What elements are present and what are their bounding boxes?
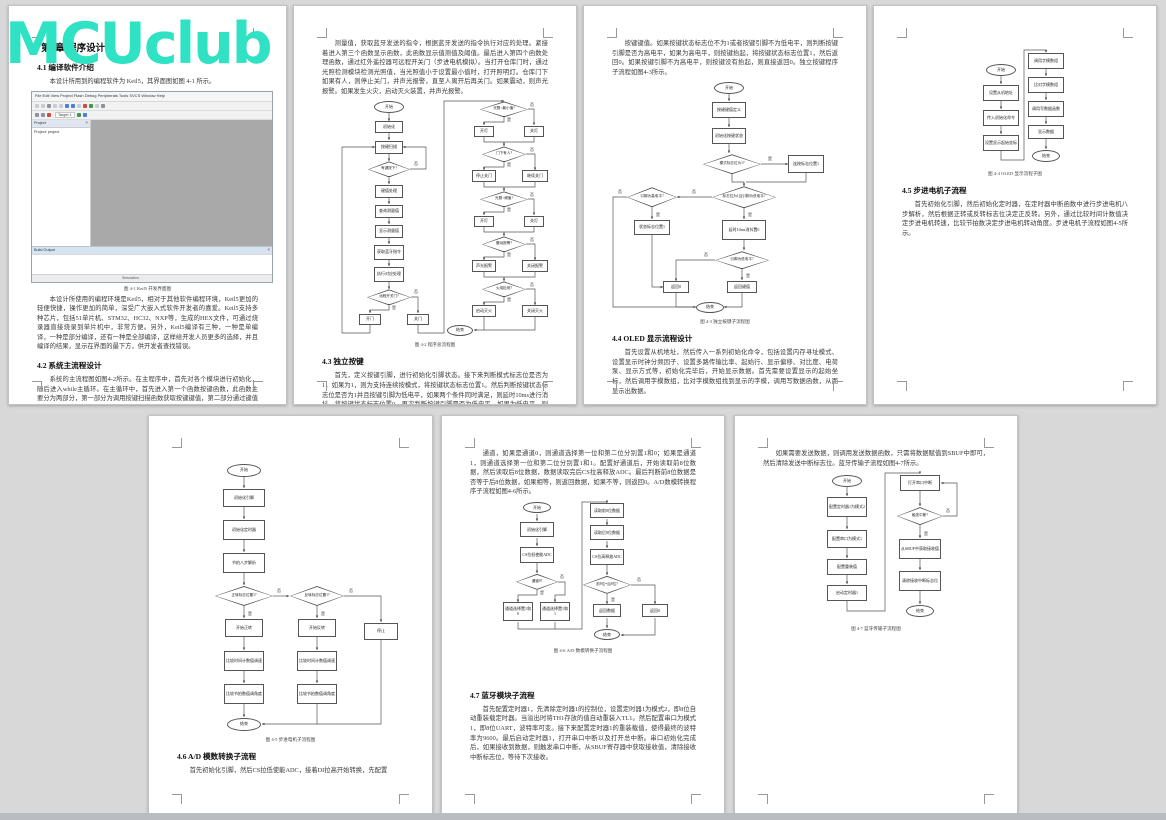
page-2[interactable]: 测量值，获取蓝牙发送的指令，根据蓝牙发送的指令执行对应的处理。紧接着进入第三个函…: [293, 5, 577, 405]
margin-corner-mark: [253, 381, 263, 391]
flowchart-node-box: 继续关门: [522, 170, 548, 182]
flowchart-node-box: 初始化引脚: [223, 489, 265, 507]
svg-text:是: 是: [656, 211, 660, 217]
section-4-6-title: 4.6 A/D 模数转换子流程: [177, 751, 404, 762]
flowchart-node-diamond: 触发中断?: [897, 507, 943, 525]
keil-status-bar: Simulation: [32, 274, 272, 282]
svg-text:是: 是: [768, 155, 772, 161]
flowchart-node-box: 打开串口中断: [900, 475, 940, 491]
margin-corner-mark: [253, 28, 263, 38]
project-panel-title: Project: [34, 121, 46, 125]
flowchart-node-box: 设置显示起始坐标: [983, 135, 1019, 151]
margin-corner-mark: [833, 28, 843, 38]
paragraph: 按键键值。如果按键状态标志位不为1或者按键引脚不为低电平，则判断按键引脚是否为高…: [612, 39, 838, 77]
build-output-title: Build Output: [34, 248, 55, 252]
flowchart-node-oval: 开始: [986, 64, 1016, 76]
margin-corner-mark: [399, 794, 409, 804]
flowchart-node-box: 开灯: [474, 216, 494, 227]
figure-caption: 图 4-1 Keil5 开发界面图: [37, 286, 258, 292]
flowchart-node-diamond: 前8位=后8位?: [583, 576, 631, 594]
flowchart-node-box: 返回0: [642, 604, 668, 617]
flowchart-node-diamond: 震动报警?: [482, 236, 526, 252]
close-icon: ×: [267, 248, 270, 253]
flowchart-node-box: 开始反转: [298, 619, 336, 637]
keil-editor-area: [91, 120, 272, 246]
flowchart-node-box: 显示数据: [1028, 125, 1064, 139]
flowchart-node-diamond: 引脚为高电平?: [627, 187, 677, 207]
spacer: [470, 656, 696, 682]
section-4-7-title: 4.7 蓝牙模块子流程: [470, 690, 696, 701]
svg-text:是: 是: [611, 596, 615, 602]
keil-menu-bar: File Edit View Project Flash Debug Perip…: [32, 92, 272, 102]
flowchart-node-box: 初始化按键状态: [712, 128, 746, 144]
flowchart-node-box: 初始化引脚: [520, 522, 554, 537]
figure-caption: 图 4-6 A/D 数模转换子流程图: [470, 648, 696, 654]
flowchart-node-box: 显示测量值: [375, 225, 403, 238]
svg-text:否: 否: [530, 282, 534, 287]
page-7[interactable]: 如果需要发送数据，则调用发送数据函数，只需将数据赋值到SBUF中即可，然后清除发…: [734, 415, 1018, 818]
svg-text:否: 否: [414, 289, 418, 294]
run-icon: [89, 104, 93, 108]
document-canvas[interactable]: MCUclub 第4章 程序设计 4.1 编译软件介绍 本设计所用到的编程软件为…: [0, 0, 1166, 820]
flowchart-node-diamond: 模式标志位为1?: [703, 154, 761, 174]
svg-text:否: 否: [530, 147, 534, 152]
flowchart-node-box: 配置串口为模式1: [827, 530, 867, 548]
section-4-2-title: 4.2 系统主流程设计: [37, 360, 258, 371]
flowchart-node-box: 开始正转: [225, 619, 263, 637]
build-output-area: [32, 254, 272, 274]
page-1[interactable]: MCUclub 第4章 程序设计 4.1 编译软件介绍 本设计所用到的编程软件为…: [8, 5, 287, 405]
redo-icon: [71, 104, 75, 108]
flowchart-node-box: 传入初始化命令: [983, 110, 1019, 126]
margin-corner-mark: [758, 438, 768, 448]
flowchart-node-box: 按键扫描: [375, 141, 403, 154]
breakpoint-icon: [83, 104, 87, 108]
margin-corner-mark: [399, 438, 409, 448]
flowchart-node-oval: 结束: [696, 302, 724, 313]
figure-caption: 图 4-4 OLED 显示流程子图: [902, 171, 1128, 177]
flowchart-node-box: 节拍八步解析: [223, 553, 265, 573]
margin-corner-mark: [607, 28, 617, 38]
margin-corner-mark: [607, 381, 617, 391]
svg-text:否: 否: [530, 237, 534, 242]
paragraph: 首先设置从机地址，然后传入一系列初始化命令，包括设置内存寻址模式、设置显示时钟分…: [612, 348, 838, 396]
margin-corner-mark: [317, 28, 327, 38]
figure-caption: 图 4-5 步进电机子流程图: [177, 737, 404, 743]
flowchart-node-box: 读取后8位数据: [590, 525, 624, 540]
keil-workspace: Project × Project: project: [32, 120, 272, 246]
svg-text:否: 否: [560, 574, 564, 579]
flowchart-node-box: 初始化定时器: [223, 520, 265, 540]
flowchart-node-oval: 结束: [1032, 150, 1060, 162]
paragraph: 本设计所用到的编程软件为 Keil5，其界面图如图 4-1 所示。: [37, 77, 258, 87]
margin-corner-mark: [984, 438, 994, 448]
build-output-header: Build Output ×: [32, 246, 272, 254]
flowchart-node-box: 通道选择置1和0: [503, 602, 533, 621]
margin-corner-mark: [32, 28, 42, 38]
svg-text:否: 否: [946, 508, 950, 513]
flowchart-node-box: 清除接收中断标志位: [899, 571, 941, 591]
flowchart-node-box: CS拉高释放ADC: [590, 549, 624, 565]
flowchart-node-box: 比对字模数组: [1028, 77, 1064, 93]
paragraph: 如果需要发送数据，则调用发送数据函数，只需将数据赋值到SBUF中即可，然后清除发…: [763, 449, 989, 468]
project-tree-item: Project: project: [32, 128, 90, 136]
svg-text:否: 否: [530, 102, 534, 107]
margin-corner-mark: [897, 28, 907, 38]
new-file-icon: [35, 104, 39, 108]
undo-icon: [65, 104, 69, 108]
flowchart-node-diamond: 反转标志位置1?: [290, 586, 344, 606]
keil-ide-screenshot: File Edit View Project Flash Debug Perip…: [31, 91, 273, 283]
paragraph: 测量值，获取蓝牙发送的指令，根据蓝牙发送的指令执行对应的处理。紧接着进入第三个函…: [322, 39, 548, 96]
flowchart-node-box: 按键键值定义: [712, 102, 746, 118]
flowchart-node-box: 延时10ms消抖置0: [722, 220, 766, 240]
window-bottom-strip: [0, 813, 1166, 820]
bluetooth-flowchart: 是否开始配置定时器1为模式2配置串口为模式1配置重装值启动定时器1打开串口中断触…: [735, 471, 1018, 623]
svg-text:否: 否: [618, 189, 622, 194]
margin-corner-mark: [758, 794, 768, 804]
flowchart-node-box: 关灯: [524, 126, 544, 137]
adc-flowchart: 是否是否开始初始化引脚CS拉低使能ADC通道0?通道选择置1和0通道选择置1和1…: [442, 500, 725, 645]
open-file-icon: [41, 104, 45, 108]
load-icon: [47, 113, 51, 117]
flowchart-node-diamond: 门下有人?: [482, 146, 526, 162]
status-text: Simulation: [122, 276, 139, 280]
flowchart-node-box: 启动定时器1: [827, 585, 867, 601]
paragraph: 本设计所使用的编程环境是Keil5，相对于其他软件编程环境，Keil5更加的轻便…: [37, 295, 258, 352]
flowchart-node-box: 比较时间计数值调速: [297, 651, 337, 671]
svg-text:否: 否: [704, 252, 708, 257]
margin-corner-mark: [1123, 28, 1133, 38]
flowchart-node-diamond: 光照<最小值?: [480, 101, 528, 117]
svg-text:是: 是: [924, 530, 928, 536]
flowchart-node-box: 关门: [407, 314, 429, 325]
flowchart-node-box: CS拉低使能ADC: [520, 547, 554, 563]
svg-text:是: 是: [248, 610, 252, 616]
build-icon: [35, 113, 39, 117]
flowchart-node-box: 关闭灭火: [522, 305, 548, 317]
keil-toolbar-top: [32, 102, 272, 111]
flowchart-node-box: 获取蓝牙指令: [374, 245, 404, 260]
options-icon: [83, 113, 87, 117]
flowchart-node-diamond: 有键按下?: [368, 161, 410, 177]
page-3[interactable]: 按键键值。如果按键状态标志位不为1或者按键引脚不为低电平，则判断按键引脚是否为高…: [583, 5, 867, 405]
svg-text:是: 是: [321, 610, 325, 616]
flowchart-node-box: 比较节拍数值调角度: [224, 684, 264, 704]
flowchart-node-diamond: 标志位为1且引脚为低电平?: [712, 186, 776, 208]
flowchart-node-box: 调用写数据函数: [1028, 101, 1064, 117]
copy-icon: [59, 104, 63, 108]
flowchart-node-box: 读取前8位数据: [590, 503, 624, 518]
debug-icon: [77, 113, 81, 117]
flowchart-node-box: 键值处理: [375, 185, 403, 198]
flowchart-node-box: 开灯: [474, 126, 494, 137]
flowchart-node-box: 停止关门: [472, 170, 496, 182]
figure-caption: 图 4-3 独立按键子流程图: [612, 319, 838, 325]
paragraph: 通道，如果是通道0，则通道选择第一位和第二位分别置1和0；如果是通道1，则通道选…: [470, 449, 696, 497]
flowchart-node-box: 执行对应处理: [374, 267, 404, 282]
margin-corner-mark: [465, 794, 475, 804]
margin-corner-mark: [1123, 381, 1133, 391]
flowchart-node-box: 声光报警: [472, 260, 496, 272]
page-4[interactable]: 开始设置从机地址传入初始化命令设置显示起始坐标调用字模数组比对字模数组调用写数据…: [873, 5, 1157, 405]
key-flowchart: 是否是是否是否开始按键键值定义初始化按键状态模式标志位为1?连按标志位置1标志位…: [584, 80, 867, 316]
main-flowchart: 否是否是否是否是否是否是否开始初始化按键扫描有键按下?键值处理查询测量值显示测量…: [294, 99, 577, 339]
svg-text:否: 否: [530, 192, 534, 197]
flowchart-node-diamond: 火焰检测?: [482, 281, 526, 297]
flowchart-node-diamond: 通道0?: [516, 574, 558, 590]
cut-icon: [53, 104, 57, 108]
flowchart-node-box: 比较节拍数值调角度: [297, 684, 337, 704]
flowchart-node-box: 开门: [359, 314, 381, 325]
svg-text:是: 是: [746, 272, 750, 278]
chapter-title: 第4章 程序设计: [41, 40, 258, 54]
flowchart-node-box: 启动灭火: [472, 305, 496, 317]
save-icon: [47, 104, 51, 108]
section-4-4-title: 4.4 OLED 显示流程设计: [612, 333, 838, 344]
bookmark-icon: [77, 104, 81, 108]
flowchart-node-box: 返回0: [663, 281, 689, 293]
margin-corner-mark: [833, 381, 843, 391]
section-4-1-title: 4.1 编译软件介绍: [37, 62, 258, 73]
flowchart-node-box: 停止: [364, 623, 398, 640]
close-icon: ×: [85, 121, 88, 126]
flowchart-node-diamond: 远程开关门?: [367, 289, 411, 305]
target-select: Target 1: [55, 112, 75, 118]
svg-text:否: 否: [414, 161, 418, 166]
flowchart-node-box: 返回键值: [727, 281, 757, 293]
flowchart-node-box: 关闭报警: [522, 260, 548, 272]
flowchart-node-oval: 结束: [227, 718, 261, 731]
svg-text:否: 否: [277, 588, 281, 593]
section-4-3-title: 4.3 独立按键: [322, 356, 548, 367]
margin-corner-mark: [691, 794, 701, 804]
flowchart-node-box: 配置定时器1为模式2: [827, 497, 867, 517]
paragraph: 系统的主流程图如图4-2所示。在主程序中，首先对各个模块进行初始化，随后进入wh…: [37, 375, 258, 405]
svg-text:否: 否: [349, 588, 353, 593]
flowchart-node-box: 初始化: [375, 121, 403, 133]
flowchart-node-box: 查询测量值: [375, 205, 403, 218]
flowchart-node-box: 比较时间计数值调速: [224, 651, 264, 671]
margin-corner-mark: [897, 381, 907, 391]
settings-icon: [101, 104, 105, 108]
oled-flowchart: 开始设置从机地址传入初始化命令设置显示起始坐标调用字模数组比对字模数组调用写数据…: [874, 48, 1157, 168]
project-panel-header: Project ×: [32, 120, 90, 128]
keil-project-panel: Project × Project: project: [32, 120, 91, 246]
flowchart-node-box: 状态标志位置1: [634, 220, 670, 235]
flowchart-node-box: 关灯: [524, 216, 544, 227]
section-4-5-title: 4.5 步进电机子流程: [902, 185, 1128, 196]
margin-corner-mark: [172, 794, 182, 804]
margin-corner-mark: [317, 381, 327, 391]
paragraph: 首先配置定时器1，先清除定时器1的控制位，设置定时器1为模式2，即8位自动重装载…: [470, 705, 696, 762]
svg-text:否: 否: [637, 577, 641, 582]
flowchart-node-box: 返回数据: [593, 604, 621, 617]
paragraph: 首先初始化引脚，然后初始化定时器，在定时器中断函数中进行步进电机八步解析，然后根…: [902, 200, 1128, 238]
svg-text:是: 是: [748, 211, 752, 217]
figure-caption: 图 4-7 蓝牙传输子流程图: [763, 626, 989, 632]
flowchart-node-box: 连按标志位置1: [788, 155, 824, 173]
flowchart-node-box: 从SBUF中获取接收值: [899, 539, 941, 559]
svg-text:否: 否: [692, 189, 696, 194]
figure-caption: 图 4-2 程序总流程图: [322, 342, 548, 348]
flowchart-node-diamond: 引脚为低电平?: [715, 251, 769, 269]
margin-corner-mark: [32, 381, 42, 391]
flowchart-node-box: 设置从机地址: [983, 85, 1019, 101]
margin-corner-mark: [543, 381, 553, 391]
margin-corner-mark: [465, 438, 475, 448]
flowchart-node-diamond: 正转标志位置1?: [215, 586, 273, 606]
paragraph: 首先初始化引脚，然后CS拉低使能ADC，接着DI拉高开始转换，先配置: [177, 766, 404, 776]
flowchart-node-diamond: 光照<阈值?: [480, 191, 528, 207]
rebuild-icon: [41, 113, 45, 117]
flowchart-node-oval: 结束: [447, 325, 473, 336]
keil-toolbar-build: Target 1: [32, 111, 272, 120]
flowchart-node-box: 通道选择置1和1: [540, 602, 570, 621]
margin-corner-mark: [691, 438, 701, 448]
paragraph: 首先，定义按键引脚，进行初始化引脚状态。接下来判断模式标志位是否为1，如果为1，…: [322, 371, 548, 405]
margin-corner-mark: [984, 794, 994, 804]
margin-corner-mark: [543, 28, 553, 38]
flowchart-node-box: 调用字模数组: [1028, 53, 1064, 69]
page-5[interactable]: 否是否是开始初始化引脚初始化定时器节拍八步解析正转标志位置1?反转标志位置1?开…: [148, 415, 433, 818]
flowchart-node-box: 配置重装值: [827, 559, 867, 575]
margin-corner-mark: [172, 438, 182, 448]
stepper-flowchart: 否是否是开始初始化引脚初始化定时器节拍八步解析正转标志位置1?反转标志位置1?开…: [149, 458, 433, 734]
flowchart-node-oval: 开始: [227, 464, 261, 477]
page-6[interactable]: 通道，如果是通道0，则通道选择第一位和第二位分别置1和0；如果是通道1，则通道选…: [441, 415, 725, 818]
search-icon: [95, 104, 99, 108]
